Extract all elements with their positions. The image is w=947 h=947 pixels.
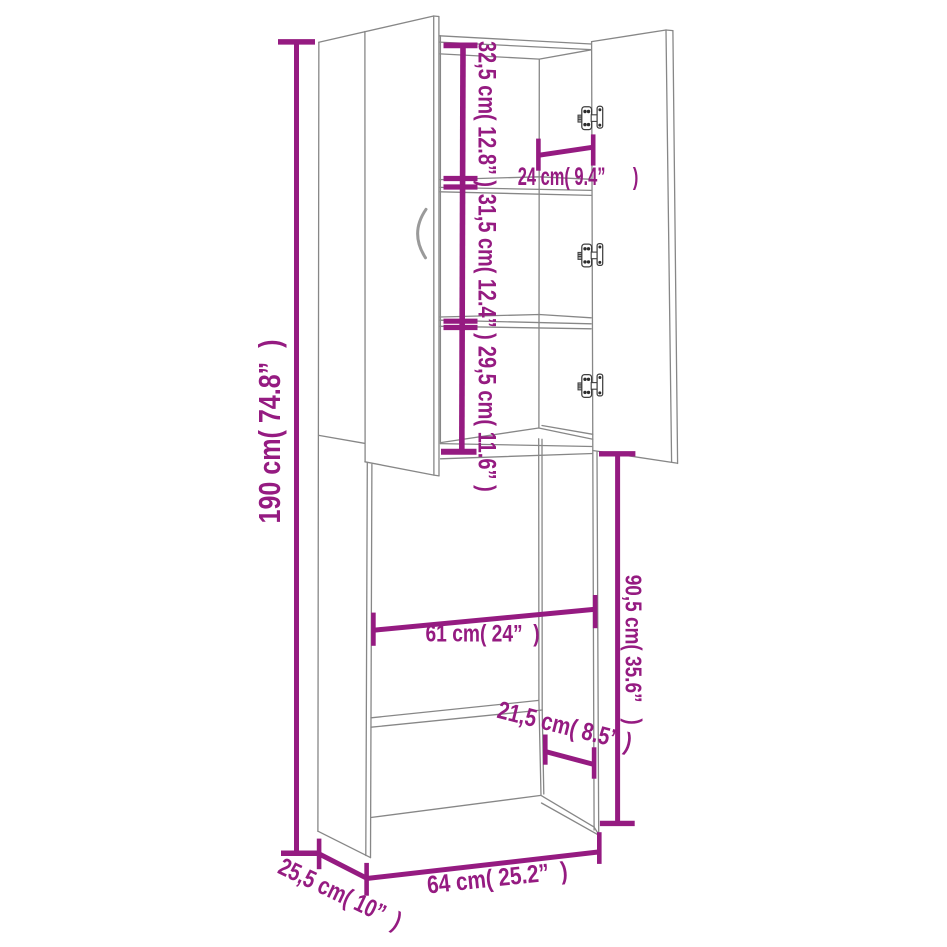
svg-text:61 cm( 24” ): 61 cm( 24” ): [426, 621, 540, 648]
svg-text:90,5 cm( 35.6” ): 90,5 cm( 35.6” ): [620, 575, 646, 725]
svg-text:190 cm( 74.8” ): 190 cm( 74.8” ): [252, 340, 287, 524]
svg-text:24 cm( 9.4” ): 24 cm( 9.4” ): [518, 163, 639, 191]
svg-text:29,5 cm( 11.6” ): 29,5 cm( 11.6” ): [473, 346, 501, 492]
svg-text:31,5 cm( 12.4” ): 31,5 cm( 12.4” ): [473, 194, 501, 340]
svg-text:32,5 cm( 12.8” ): 32,5 cm( 12.8” ): [473, 41, 501, 187]
